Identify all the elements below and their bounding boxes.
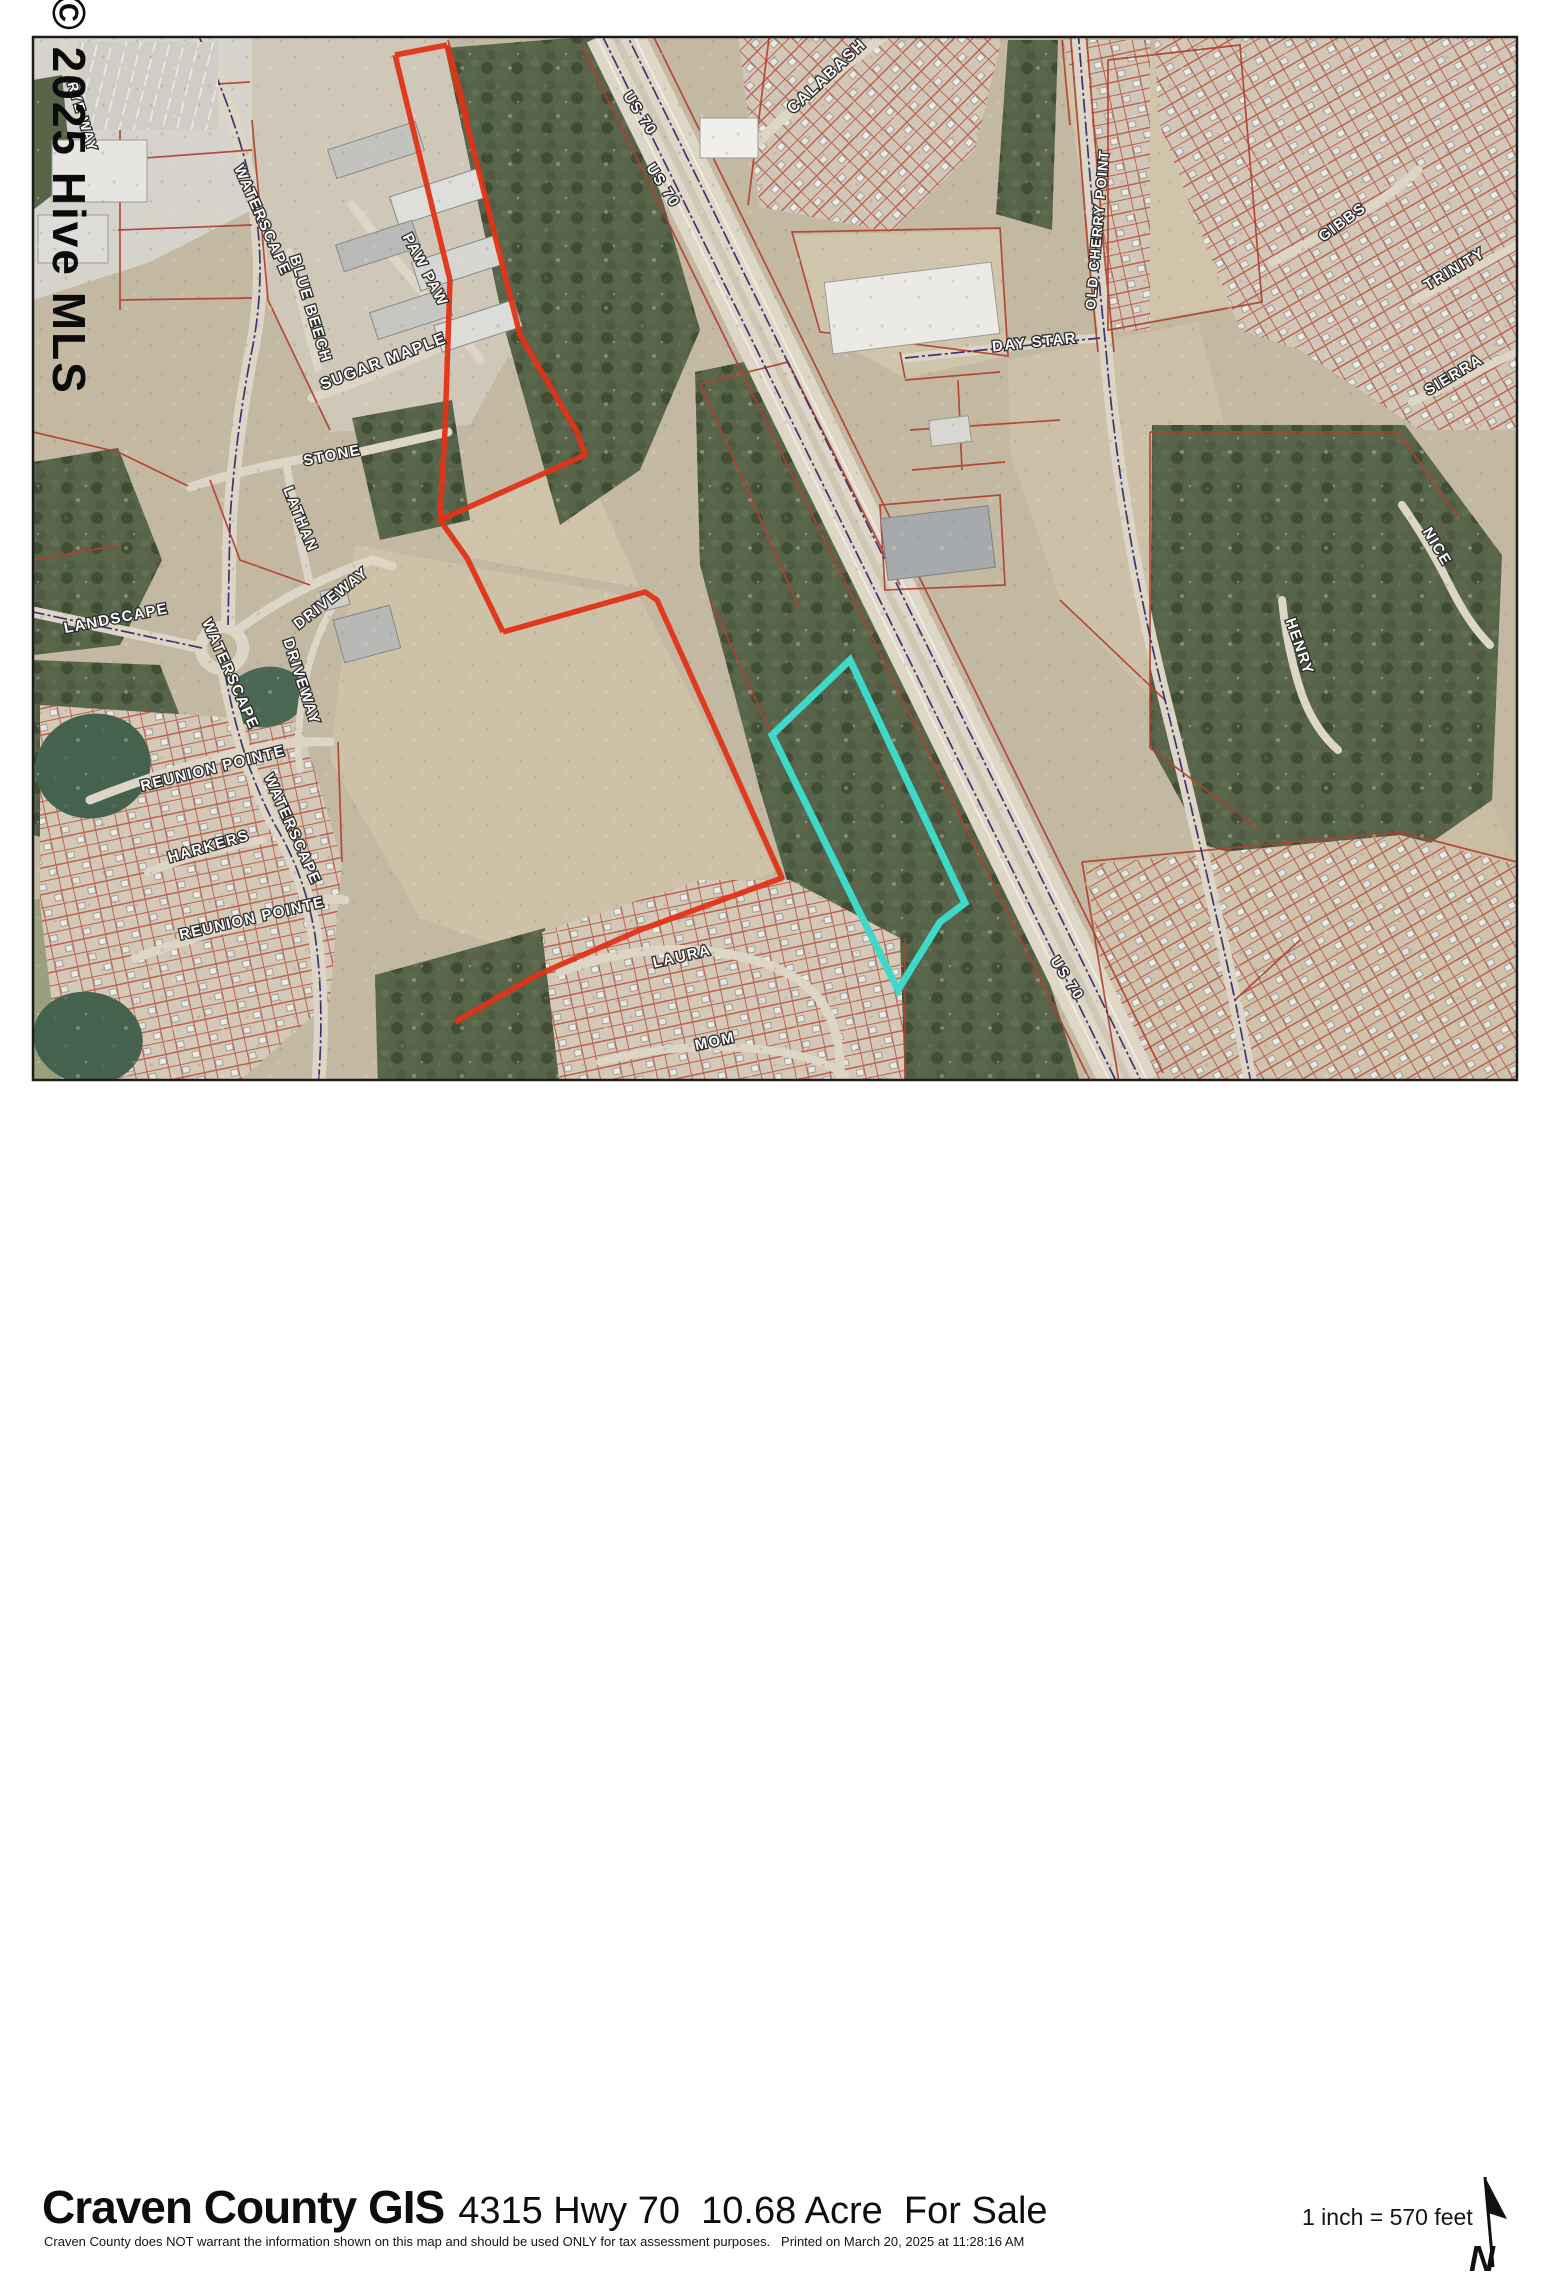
north-label: N (1469, 2238, 1496, 2279)
gis-map: RYE WAYWATERSCAPEPAW PAWBLUE BEECHSUGAR … (0, 0, 1545, 1194)
footer-bar: Craven County GIS 4315 Hwy 70 10.68 Acre… (0, 1088, 1545, 1194)
north-arrow-icon: N (1455, 2171, 1535, 2279)
footer-title-line: Craven County GIS 4315 Hwy 70 10.68 Acre… (42, 2180, 1048, 2234)
page-background: RYE WAYWATERSCAPEPAW PAWBLUE BEECHSUGAR … (0, 0, 1545, 1194)
disclaimer-text: Craven County does NOT warrant the infor… (44, 2234, 1024, 2249)
scale-text: 1 inch = 570 feet (1302, 2204, 1473, 2231)
aerial-map-canvas: RYE WAYWATERSCAPEPAW PAWBLUE BEECHSUGAR … (0, 0, 1545, 1194)
mls-watermark: © 2025 Hive MLS (42, 0, 96, 395)
aerial-basemap: RYE WAYWATERSCAPEPAW PAWBLUE BEECHSUGAR … (24, 15, 1517, 1103)
page-title: Craven County GIS (42, 2180, 444, 2234)
listing-summary: 4315 Hwy 70 10.68 Acre For Sale (458, 2190, 1047, 2233)
